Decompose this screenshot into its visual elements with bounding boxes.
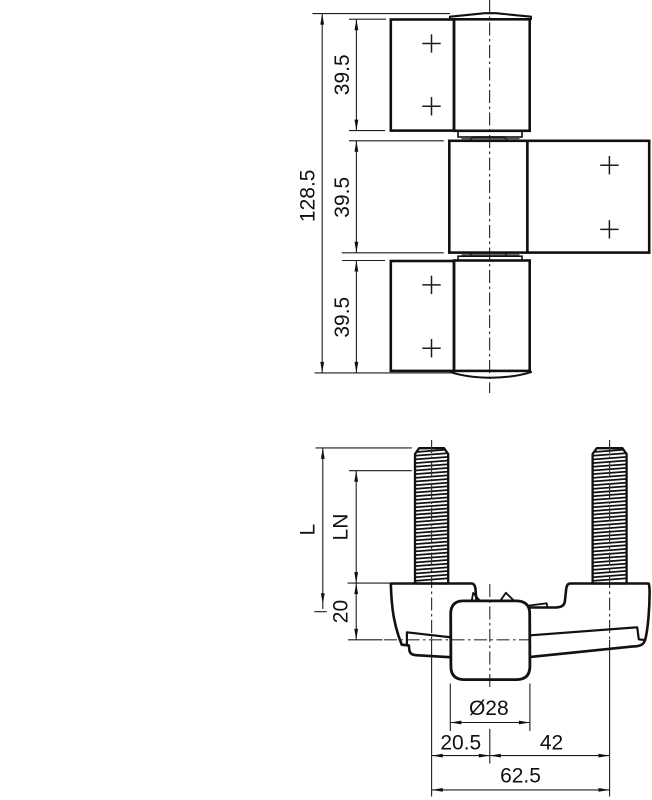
svg-text:Ø28: Ø28	[469, 697, 509, 720]
svg-text:62.5: 62.5	[500, 765, 541, 788]
svg-text:42: 42	[540, 732, 563, 755]
svg-text:128.5: 128.5	[297, 170, 320, 223]
svg-text:39.5: 39.5	[331, 297, 354, 338]
svg-text:39.5: 39.5	[331, 177, 354, 218]
svg-text:20.5: 20.5	[440, 732, 481, 755]
svg-text:20: 20	[329, 600, 352, 623]
svg-text:LN: LN	[330, 514, 353, 541]
svg-text:L: L	[297, 524, 320, 536]
svg-text:39.5: 39.5	[331, 54, 354, 95]
